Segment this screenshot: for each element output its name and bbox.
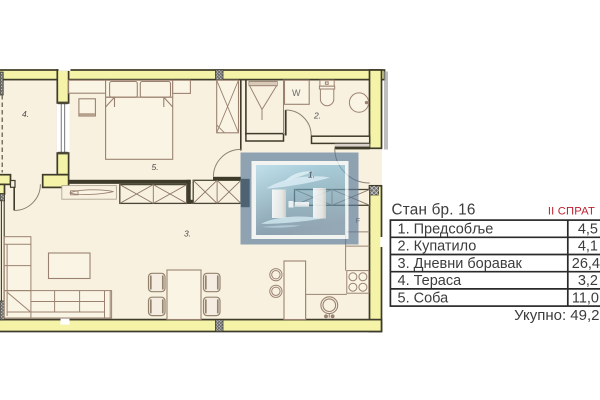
svg-text:4.: 4. <box>22 109 29 119</box>
svg-text:W: W <box>292 88 301 98</box>
svg-text:1.: 1. <box>308 170 315 180</box>
svg-text:4,1: 4,1 <box>578 239 598 255</box>
svg-text:Стан бр. 16: Стан бр. 16 <box>392 202 476 219</box>
svg-text:3,2: 3,2 <box>578 273 598 289</box>
svg-text:11,0: 11,0 <box>572 290 599 306</box>
svg-text:5.: 5. <box>152 162 159 172</box>
svg-text:4. Тераса: 4. Тераса <box>398 273 463 289</box>
svg-text:3. Дневни боравак: 3. Дневни боравак <box>398 256 523 272</box>
svg-text:1. Предсобље: 1. Предсобље <box>398 222 494 238</box>
svg-text:2.: 2. <box>313 111 321 121</box>
svg-text:Укупно: 49,2: Укупно: 49,2 <box>514 307 599 324</box>
svg-text:26,4: 26,4 <box>572 256 600 272</box>
svg-text:II СПРАТ: II СПРАТ <box>548 206 595 218</box>
svg-text:5. Соба: 5. Соба <box>398 290 450 306</box>
svg-text:3.: 3. <box>184 229 191 239</box>
svg-text:4,5: 4,5 <box>578 222 598 238</box>
svg-text:2. Купатило: 2. Купатило <box>398 239 477 255</box>
